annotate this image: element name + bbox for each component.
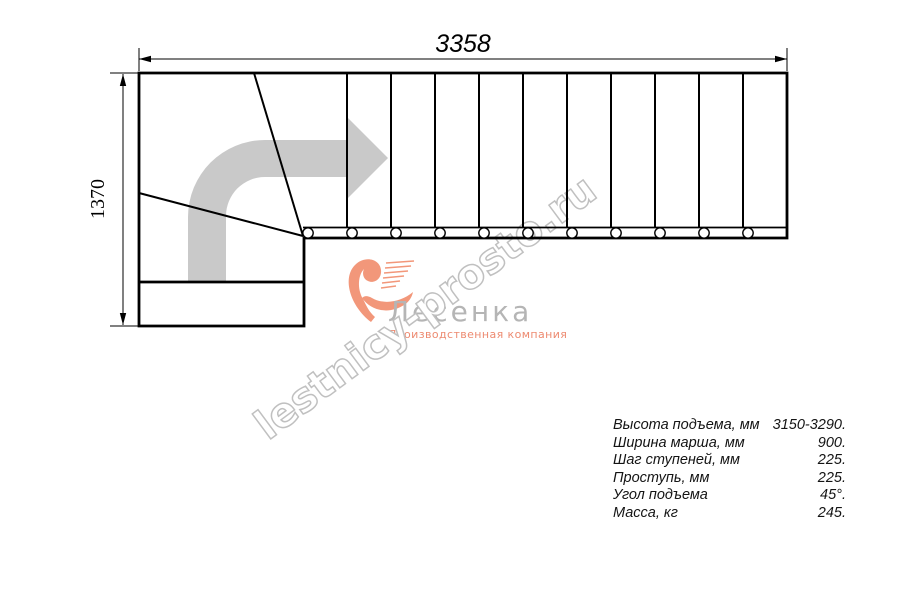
dimension-total-width: 1370	[87, 179, 109, 219]
spec-label: Угол подъема	[613, 487, 708, 505]
spec-table: Высота подъема, мм 3150-3290. Ширина мар…	[613, 417, 846, 522]
spec-label: Проступь, мм	[613, 470, 709, 488]
stair-plan-drawing: Лесенка Производственная компания lestni…	[0, 0, 900, 600]
spec-value: 45°.	[820, 487, 846, 505]
spec-label: Высота подъема, мм	[613, 417, 760, 435]
spec-label: Ширина марша, мм	[613, 435, 745, 453]
spec-row-step-pitch: Шаг ступеней, мм 225.	[613, 452, 846, 470]
spec-label: Шаг ступеней, мм	[613, 452, 740, 470]
spec-row-rise-height: Высота подъема, мм 3150-3290.	[613, 417, 846, 435]
logo-speed-lines	[381, 261, 414, 288]
spec-row-rise-angle: Угол подъема 45°.	[613, 487, 846, 505]
spec-value: 225.	[818, 470, 846, 488]
spec-value: 245.	[818, 505, 846, 523]
spec-row-tread-depth: Проступь, мм 225.	[613, 470, 846, 488]
spec-row-mass: Масса, кг 245.	[613, 505, 846, 523]
watermark-text: lestnicy-prosto.ru	[245, 165, 605, 449]
spec-label: Масса, кг	[613, 505, 678, 523]
spec-row-flight-width: Ширина марша, мм 900.	[613, 435, 846, 453]
spec-value: 3150-3290.	[773, 417, 846, 435]
spec-value: 900.	[818, 435, 846, 453]
dimension-total-length: 3358	[435, 30, 491, 58]
spec-value: 225.	[818, 452, 846, 470]
direction-arrow	[188, 118, 388, 282]
